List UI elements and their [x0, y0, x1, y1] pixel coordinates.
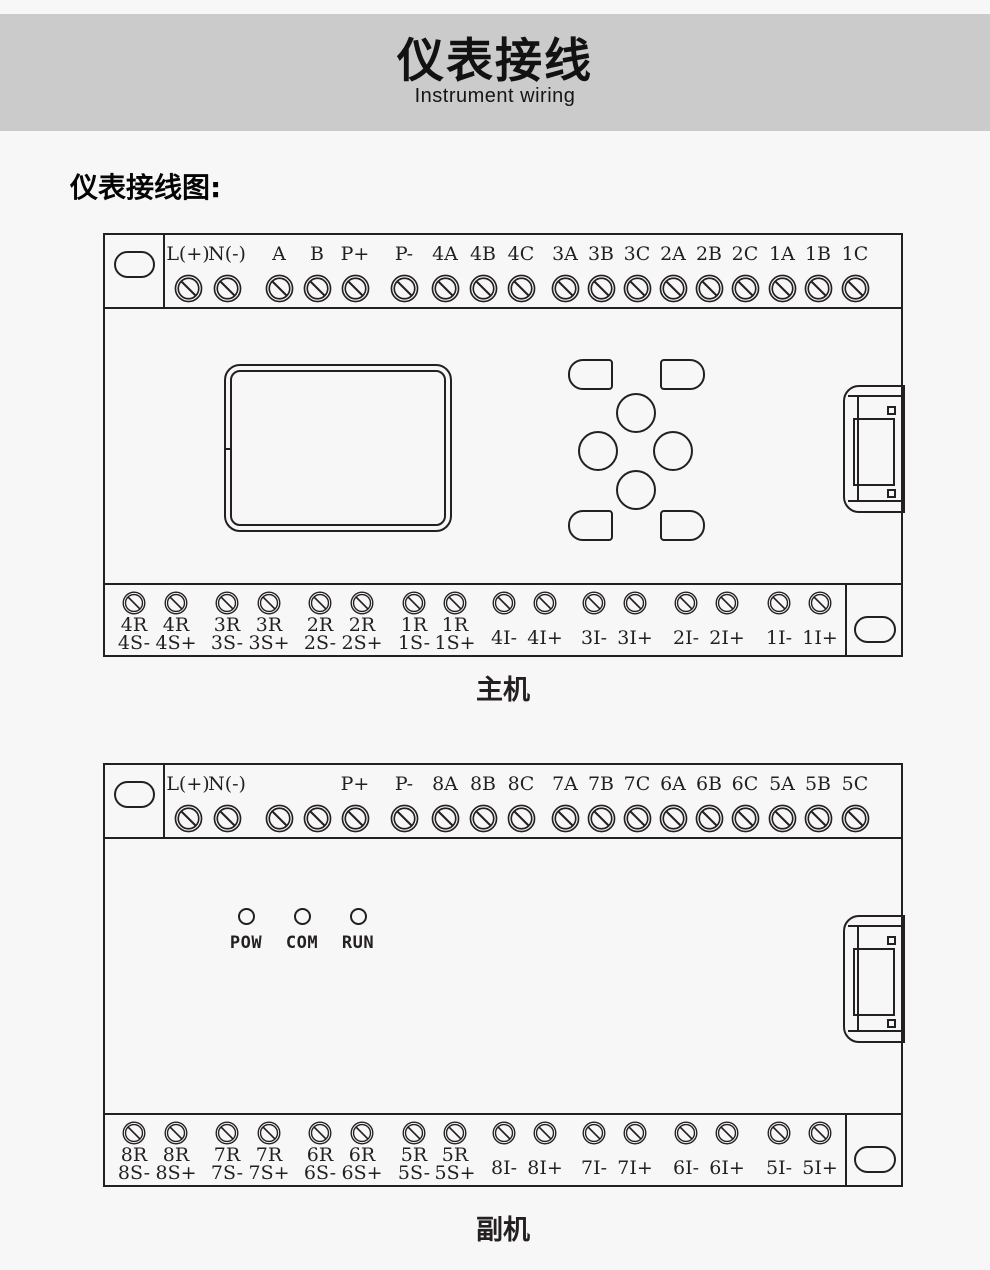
screw-terminal-icon — [341, 804, 370, 833]
terminal-label-line2: 1S- — [398, 634, 430, 652]
side-connector — [843, 915, 905, 1043]
terminal-label: 3I+ — [617, 629, 653, 647]
terminal-label: N(-) — [208, 241, 246, 267]
screw-terminal-icon — [213, 804, 242, 833]
divider-line — [845, 583, 847, 655]
terminal-label: 3C — [624, 241, 651, 267]
screw-terminal-icon — [350, 591, 374, 615]
terminal-label: 6R6S- — [304, 1146, 336, 1182]
mounting-slot — [114, 251, 155, 278]
terminal-label: 8R8S+ — [155, 1146, 196, 1182]
terminal-label-line2: 3S- — [211, 634, 243, 652]
terminal-label: 7R7S- — [211, 1146, 243, 1182]
device-box: L(+)N(-)P+P-8A8B8C7A7B7C6A6B6C5A5B5C8R8S… — [103, 763, 903, 1187]
connector-tab-top — [887, 406, 896, 415]
screw-terminal-icon — [492, 591, 516, 615]
divider-line — [105, 1113, 901, 1115]
divider-line — [845, 1113, 847, 1185]
connector-socket — [853, 948, 895, 1016]
screw-terminal-icon — [767, 591, 791, 615]
terminal-label: 4R4S- — [118, 616, 150, 652]
terminal-label: 2R2S- — [304, 616, 336, 652]
terminal-label: A — [272, 241, 286, 267]
screw-terminal-icon — [808, 1121, 832, 1145]
key-top-right — [660, 359, 705, 390]
led-label: RUN — [342, 934, 374, 952]
page-banner: 仪表接线 Instrument wiring — [0, 14, 990, 131]
terminal-label: 5A — [769, 771, 795, 797]
banner-subtitle: Instrument wiring — [415, 85, 576, 108]
key-top-left — [568, 359, 613, 390]
terminal-label: 4I- — [491, 629, 517, 647]
terminal-label: 4C — [508, 241, 535, 267]
screw-terminal-icon — [469, 274, 498, 303]
connector-tab-bottom — [887, 1019, 896, 1028]
screw-terminal-icon — [431, 274, 460, 303]
led-indicator — [238, 908, 255, 925]
lcd-display — [224, 364, 452, 532]
terminal-label: P+ — [341, 771, 370, 797]
screw-terminal-icon — [623, 591, 647, 615]
terminal-label-line2: 3S+ — [248, 634, 289, 652]
screw-terminal-icon — [164, 591, 188, 615]
screw-terminal-icon — [507, 274, 536, 303]
key-bottom-left — [568, 510, 613, 541]
screw-terminal-icon — [303, 804, 332, 833]
terminal-label: 2I- — [673, 629, 699, 647]
screw-terminal-icon — [350, 1121, 374, 1145]
terminal-label: 7I- — [581, 1159, 607, 1177]
led-indicator — [350, 908, 367, 925]
terminal-label-line2: 4S+ — [155, 634, 196, 652]
screw-terminal-icon — [551, 274, 580, 303]
terminal-label: 3R3S- — [211, 616, 243, 652]
screw-terminal-icon — [174, 804, 203, 833]
terminal-label: 2I+ — [709, 629, 745, 647]
divider-line — [105, 837, 901, 839]
screw-terminal-icon — [768, 804, 797, 833]
terminal-label: 2A — [660, 241, 686, 267]
screw-terminal-icon — [122, 1121, 146, 1145]
lcd-display-bezel — [230, 370, 446, 526]
side-connector — [843, 385, 905, 513]
screw-terminal-icon — [533, 591, 557, 615]
screw-terminal-icon — [390, 804, 419, 833]
screw-terminal-icon — [174, 274, 203, 303]
terminal-label-line2: 4S- — [118, 634, 150, 652]
terminal-label-line2: 6S+ — [341, 1164, 382, 1182]
terminal-label: 7I+ — [617, 1159, 653, 1177]
screw-terminal-icon — [215, 1121, 239, 1145]
screw-terminal-icon — [265, 274, 294, 303]
terminal-label: 2B — [696, 241, 722, 267]
terminal-label: 6I- — [673, 1159, 699, 1177]
terminal-label: 3A — [552, 241, 578, 267]
page: 仪表接线 Instrument wiring 仪表接线图: L(+)N(-)AB… — [0, 0, 990, 1270]
screw-terminal-icon — [443, 591, 467, 615]
screw-terminal-icon — [303, 274, 332, 303]
banner-title: 仪表接线 — [397, 37, 593, 86]
terminal-label: 5I+ — [802, 1159, 838, 1177]
key-down — [616, 470, 656, 510]
screw-terminal-icon — [308, 1121, 332, 1145]
screw-terminal-icon — [808, 591, 832, 615]
led-label: POW — [230, 934, 262, 952]
terminal-label: 2R2S+ — [341, 616, 382, 652]
mounting-slot — [854, 1146, 896, 1173]
screw-terminal-icon — [431, 804, 460, 833]
terminal-label: 1B — [805, 241, 831, 267]
screw-terminal-icon — [492, 1121, 516, 1145]
terminal-label: 4B — [470, 241, 496, 267]
divider-line — [105, 307, 901, 309]
terminal-label: 5I- — [766, 1159, 792, 1177]
screw-terminal-icon — [402, 591, 426, 615]
terminal-label-line2: 2S- — [304, 634, 336, 652]
terminal-label: 7C — [624, 771, 651, 797]
device-box: L(+)N(-)ABP+P-4A4B4C3A3B3C2A2B2C1A1B1C4R… — [103, 233, 903, 657]
terminal-label: 1A — [769, 241, 795, 267]
screw-terminal-icon — [533, 1121, 557, 1145]
connector-tab-bottom — [887, 489, 896, 498]
terminal-label: N(-) — [208, 771, 246, 797]
terminal-label: 8C — [508, 771, 535, 797]
terminal-label: 3R3S+ — [248, 616, 289, 652]
led-indicator — [294, 908, 311, 925]
terminal-label-line2: 1S+ — [434, 634, 475, 652]
screw-terminal-icon — [469, 804, 498, 833]
terminal-label: P- — [395, 241, 413, 267]
terminal-label: 4R4S+ — [155, 616, 196, 652]
screw-terminal-icon — [402, 1121, 426, 1145]
screw-terminal-icon — [804, 804, 833, 833]
device-caption: 主机 — [103, 675, 903, 707]
screw-terminal-icon — [623, 274, 652, 303]
screw-terminal-icon — [674, 591, 698, 615]
mounting-slot — [114, 781, 155, 808]
screw-terminal-icon — [731, 804, 760, 833]
terminal-label: 1I- — [766, 629, 792, 647]
terminal-label-line2: 7S+ — [248, 1164, 289, 1182]
terminal-label: 6R6S+ — [341, 1146, 382, 1182]
screw-terminal-icon — [623, 1121, 647, 1145]
screw-terminal-icon — [215, 591, 239, 615]
device-caption: 副机 — [103, 1215, 903, 1247]
screw-terminal-icon — [587, 274, 616, 303]
screw-terminal-icon — [767, 1121, 791, 1145]
screw-terminal-icon — [841, 274, 870, 303]
screw-terminal-icon — [164, 1121, 188, 1145]
screw-terminal-icon — [341, 274, 370, 303]
terminal-label-line2: 5S- — [398, 1164, 430, 1182]
bezel-tick — [226, 448, 232, 450]
screw-terminal-icon — [659, 274, 688, 303]
terminal-label: 5C — [842, 771, 869, 797]
terminal-label: 1R1S- — [398, 616, 430, 652]
divider-line — [105, 583, 901, 585]
screw-terminal-icon — [715, 1121, 739, 1145]
terminal-label-line2: 8S+ — [155, 1164, 196, 1182]
terminal-label: 8I- — [491, 1159, 517, 1177]
screw-terminal-icon — [582, 591, 606, 615]
led-label: COM — [286, 934, 318, 952]
terminal-label: P+ — [341, 241, 370, 267]
terminal-label-line2: 5S+ — [434, 1164, 475, 1182]
terminal-label: 6A — [660, 771, 686, 797]
terminal-label: 5R5S+ — [434, 1146, 475, 1182]
divider-line — [163, 765, 165, 837]
screw-terminal-icon — [507, 804, 536, 833]
screw-terminal-icon — [768, 274, 797, 303]
screw-terminal-icon — [695, 804, 724, 833]
terminal-label: 4A — [432, 241, 458, 267]
terminal-label-line2: 8S- — [118, 1164, 150, 1182]
terminal-label: 4I+ — [527, 629, 563, 647]
terminal-label: L(+) — [166, 771, 209, 797]
screw-terminal-icon — [308, 591, 332, 615]
terminal-label: 8I+ — [527, 1159, 563, 1177]
terminal-label: 2C — [732, 241, 759, 267]
screw-terminal-icon — [582, 1121, 606, 1145]
terminal-label: B — [310, 241, 324, 267]
key-bottom-right — [660, 510, 705, 541]
screw-terminal-icon — [623, 804, 652, 833]
terminal-label: 3I- — [581, 629, 607, 647]
terminal-label: 7R7S+ — [248, 1146, 289, 1182]
screw-terminal-icon — [841, 804, 870, 833]
screw-terminal-icon — [122, 591, 146, 615]
screw-terminal-icon — [257, 591, 281, 615]
terminal-label: 8R8S- — [118, 1146, 150, 1182]
terminal-label-line2: 7S- — [211, 1164, 243, 1182]
terminal-label-line2: 6S- — [304, 1164, 336, 1182]
terminal-label: 3B — [588, 241, 614, 267]
screw-terminal-icon — [257, 1121, 281, 1145]
connector-socket — [853, 418, 895, 486]
terminal-label-line2: 2S+ — [341, 634, 382, 652]
terminal-label: 6B — [696, 771, 722, 797]
terminal-label: 7A — [552, 771, 578, 797]
terminal-label: 5B — [805, 771, 831, 797]
mounting-slot — [854, 616, 896, 643]
terminal-label: 1C — [842, 241, 869, 267]
key-right — [653, 431, 693, 471]
terminal-label: 1I+ — [802, 629, 838, 647]
terminal-label: 8A — [432, 771, 458, 797]
screw-terminal-icon — [551, 804, 580, 833]
terminal-label: 1R1S+ — [434, 616, 475, 652]
screw-terminal-icon — [731, 274, 760, 303]
key-left — [578, 431, 618, 471]
terminal-label: 6C — [732, 771, 759, 797]
screw-terminal-icon — [659, 804, 688, 833]
screw-terminal-icon — [804, 274, 833, 303]
key-up — [616, 393, 656, 433]
terminal-label: 8B — [470, 771, 496, 797]
terminal-label: 7B — [588, 771, 614, 797]
screw-terminal-icon — [674, 1121, 698, 1145]
screw-terminal-icon — [213, 274, 242, 303]
terminal-label: P- — [395, 771, 413, 797]
terminal-label: 5R5S- — [398, 1146, 430, 1182]
screw-terminal-icon — [587, 804, 616, 833]
screw-terminal-icon — [265, 804, 294, 833]
section-heading: 仪表接线图: — [70, 166, 221, 206]
screw-terminal-icon — [715, 591, 739, 615]
terminal-label: 6I+ — [709, 1159, 745, 1177]
divider-line — [163, 235, 165, 307]
connector-tab-top — [887, 936, 896, 945]
screw-terminal-icon — [695, 274, 724, 303]
screw-terminal-icon — [443, 1121, 467, 1145]
screw-terminal-icon — [390, 274, 419, 303]
terminal-label: L(+) — [166, 241, 209, 267]
